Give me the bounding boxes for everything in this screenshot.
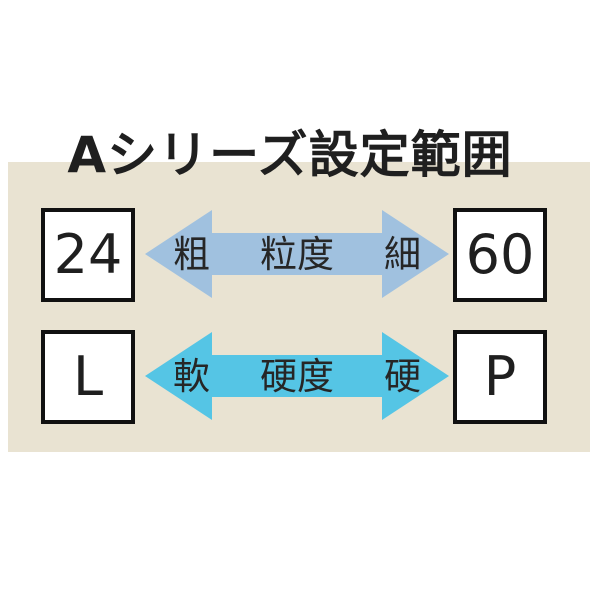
hardness-hard-label: 硬	[384, 358, 421, 395]
hardness-soft-label: 軟	[173, 358, 210, 395]
hardness-max-box: P	[453, 330, 547, 424]
hardness-arrow-labels: 軟 硬度 硬	[145, 332, 449, 420]
diagram-canvas: Aシリーズ設定範囲 24 粗 粒度 細 60 L 軟 硬度 硬 P	[0, 0, 600, 600]
grain-arrow-labels: 粗 粒度 細	[145, 210, 449, 298]
grain-fine-label: 細	[384, 236, 421, 273]
grain-coarse-label: 粗	[173, 236, 210, 273]
grain-min-box: 24	[41, 208, 135, 302]
diagram-title: Aシリーズ設定範囲	[0, 128, 580, 183]
grain-axis-label: 粒度	[260, 236, 334, 273]
hardness-axis-label: 硬度	[260, 358, 334, 395]
hardness-min-box: L	[41, 330, 135, 424]
grain-max-box: 60	[453, 208, 547, 302]
